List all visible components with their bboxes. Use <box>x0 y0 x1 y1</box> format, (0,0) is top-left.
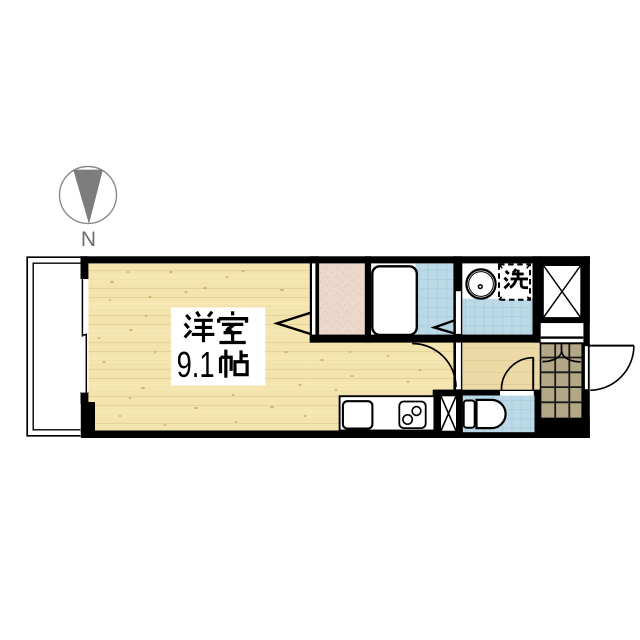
svg-text:N: N <box>81 228 96 251</box>
svg-text:9.1: 9.1 <box>177 344 215 385</box>
